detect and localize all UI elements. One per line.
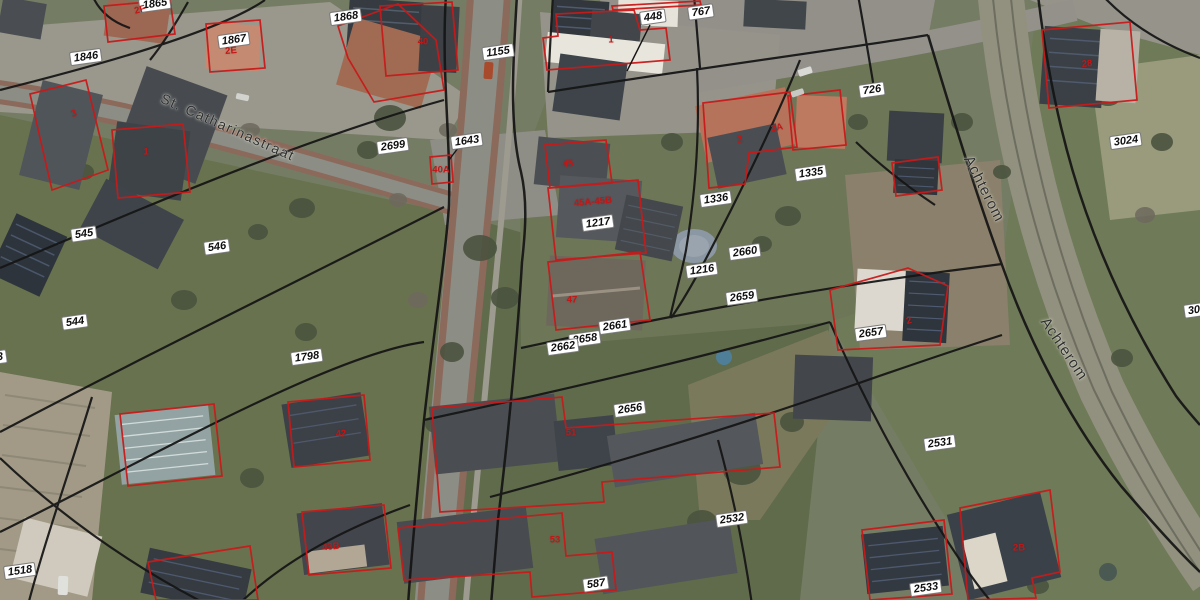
map-viewport[interactable]: St. CatharinastraatAchteromAchterom 1865… [0, 0, 1200, 600]
aerial-basemap [0, 0, 1200, 600]
